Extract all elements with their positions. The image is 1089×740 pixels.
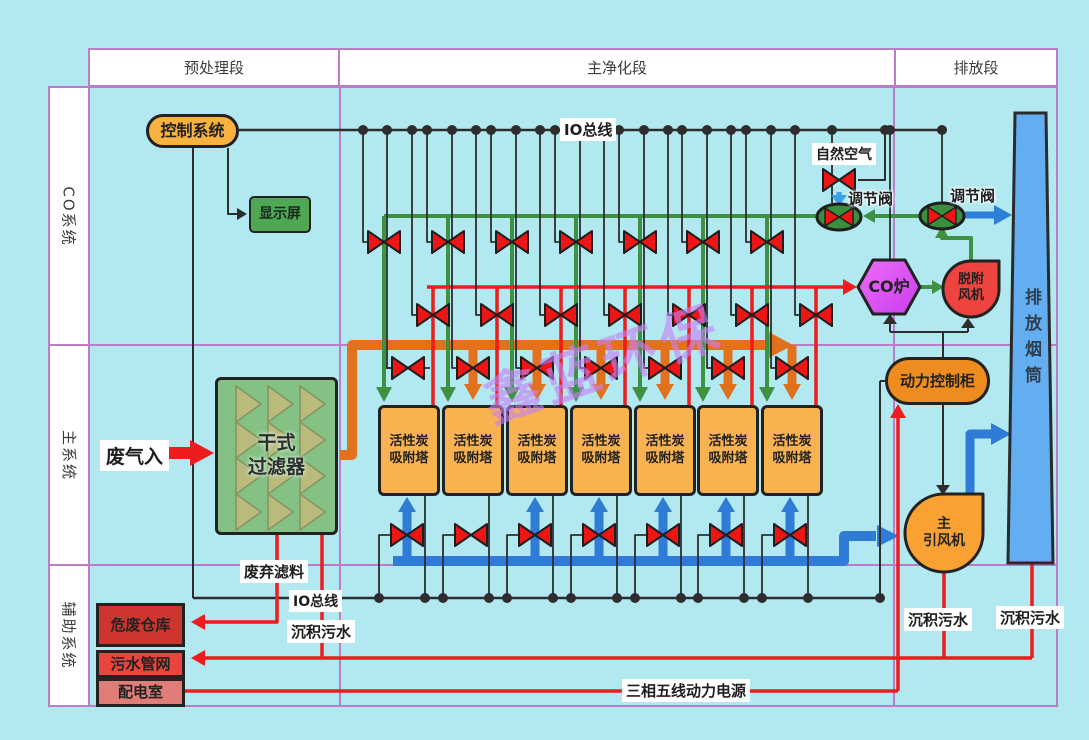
stack-label: 排放烟筒 xyxy=(1019,288,1044,392)
display-screen-node: 显示屏 xyxy=(249,196,311,233)
adsorption-tower: 活性炭吸附塔 xyxy=(697,405,759,496)
control-system-node: 控制系统 xyxy=(146,114,239,148)
waste-gas-in-label: 废气入 xyxy=(100,440,169,471)
adsorption-tower: 活性炭吸附塔 xyxy=(442,405,504,496)
regulating-valve-icon xyxy=(920,203,964,229)
regulating-valve-left-label: 调节阀 xyxy=(848,188,893,209)
natural-air-label: 自然空气 xyxy=(812,143,876,165)
power-distribution-room-node: 配电室 xyxy=(96,678,185,707)
sewage-pipe-network-node: 污水管网 xyxy=(96,650,185,678)
io-bus-top-label: IO总线 xyxy=(560,118,616,141)
desorption-fan-label: 脱附风机 xyxy=(943,264,999,312)
process-flow-diagram: 预处理段 主净化段 排放段 CO系统 主系统 辅助系统 控制系统 显示屏 干式 … xyxy=(0,0,1089,740)
main-fan-label: 主引风机 xyxy=(906,505,982,561)
adsorption-tower: 活性炭吸附塔 xyxy=(761,405,823,496)
sediment-sewage-right-label: 沉积污水 xyxy=(996,606,1064,629)
regulating-valve-right-label: 调节阀 xyxy=(950,185,995,206)
dry-filter-node: 干式 过滤器 xyxy=(215,377,338,535)
power-supply-line-label: 三相五线动力电源 xyxy=(622,679,750,702)
adsorption-tower: 活性炭吸附塔 xyxy=(378,405,440,496)
power-cabinet-node: 动力控制柜 xyxy=(885,357,990,405)
adsorption-tower: 活性炭吸附塔 xyxy=(506,405,568,496)
hazardous-waste-warehouse-node: 危废仓库 xyxy=(96,603,185,647)
adsorption-tower: 活性炭吸附塔 xyxy=(570,405,632,496)
valve-icon xyxy=(392,357,424,379)
waste-filter-material-label: 废弃滤料 xyxy=(240,560,308,583)
valve-icon xyxy=(455,524,487,546)
adsorption-tower: 活性炭吸附塔 xyxy=(634,405,696,496)
co-furnace-label: CO炉 xyxy=(858,262,920,312)
io-bus-bottom-label: IO总线 xyxy=(289,590,342,612)
sediment-sewage-mid-label: 沉积污水 xyxy=(904,608,972,631)
sediment-sewage-left-label: 沉积污水 xyxy=(287,620,355,643)
